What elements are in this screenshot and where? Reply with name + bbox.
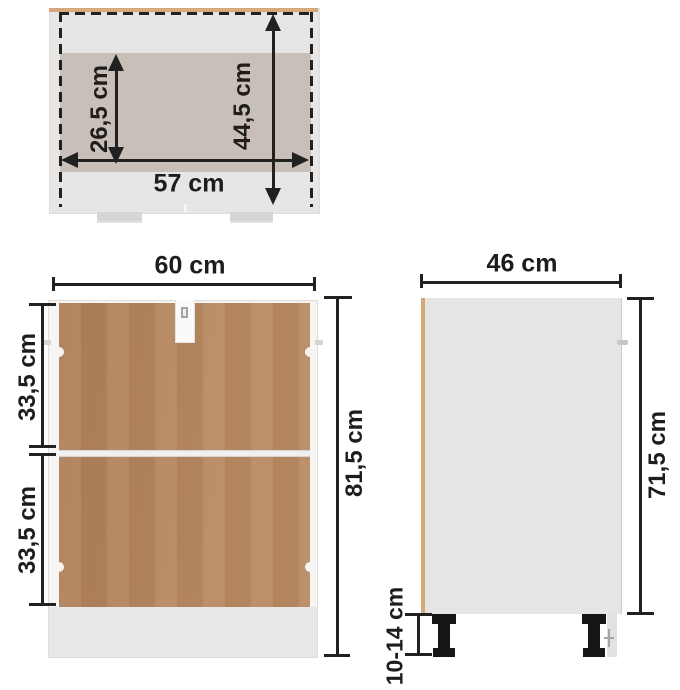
dim-line-depth — [420, 281, 622, 284]
dim-tick-bottom — [29, 445, 56, 448]
dim-label-body-height: 71,5 cm — [646, 411, 670, 499]
dashed-outline-left — [59, 12, 62, 207]
dim-label-lower-panel: 33,5 cm — [16, 486, 40, 574]
arrowhead-up-icon — [265, 14, 281, 31]
back-panel-lower — [59, 457, 310, 607]
dim-tick-top — [29, 453, 56, 456]
leg-stem — [588, 624, 600, 648]
panel-edge-notch — [305, 562, 315, 572]
dim-tick-bottom — [405, 653, 432, 656]
cabinet-dimension-diagram: 26,5 cm 44,5 cm 57 cm 60 cm — [0, 0, 680, 690]
top-foot-tab-left — [97, 212, 142, 223]
dim-tick-top — [627, 297, 654, 300]
leg-foot — [433, 648, 455, 657]
leg-adjuster-icon — [604, 629, 614, 647]
dim-line-body-height — [639, 298, 642, 614]
dashed-outline-right — [310, 12, 313, 207]
side-back-edge — [421, 298, 425, 614]
keyhole-icon — [181, 307, 188, 318]
dim-line — [115, 58, 118, 160]
dim-tick-right — [313, 277, 316, 291]
adjuster-bar — [604, 637, 614, 639]
dim-arrow-inner-width — [61, 152, 309, 168]
dim-tick-bottom — [29, 603, 56, 606]
dim-label-width: 60 cm — [155, 254, 226, 279]
dim-line — [272, 18, 275, 201]
dim-line-overall-height — [336, 297, 339, 657]
dim-arrow-overall-depth — [265, 14, 281, 205]
dim-label-overall-height: 81,5 cm — [343, 409, 367, 497]
cabinet-side-body — [421, 298, 622, 614]
top-foot-tab-right — [230, 212, 273, 223]
dim-tick-bottom — [627, 612, 654, 615]
dim-label-leg-height: 10-14 cm — [384, 587, 407, 685]
door-handle — [617, 340, 628, 345]
panel-edge-notch — [305, 347, 315, 357]
leg-rear — [582, 614, 606, 657]
dim-tick-left — [52, 277, 55, 291]
dim-line-width — [52, 283, 316, 286]
panel-edge-notch — [54, 347, 64, 357]
dim-tick-bottom — [324, 654, 350, 657]
dim-line-lower-panel — [41, 454, 44, 605]
plinth-strip — [49, 607, 317, 657]
dim-tick-right — [619, 274, 622, 288]
leg-cap — [582, 614, 606, 624]
arrowhead-left-icon — [61, 152, 78, 168]
dim-line — [65, 159, 305, 162]
dim-line-upper-panel — [41, 304, 44, 447]
hinge-pin-left — [43, 340, 51, 345]
dim-label-overall-depth: 44,5 cm — [231, 62, 255, 150]
top-bottom-notch — [184, 204, 187, 212]
leg-stem — [438, 624, 450, 648]
dim-tick-top — [29, 303, 56, 306]
dim-label-inner-width: 57 cm — [154, 172, 225, 197]
hinge-pin-right — [315, 340, 323, 345]
leg-foot — [583, 648, 605, 657]
dim-tick-top — [405, 613, 432, 616]
dim-label-inner-depth: 26,5 cm — [88, 65, 112, 153]
panel-edge-notch — [54, 562, 64, 572]
dim-tick-left — [420, 274, 423, 288]
leg-front — [432, 614, 456, 657]
leg-cap — [432, 614, 456, 624]
dim-label-depth: 46 cm — [487, 252, 558, 277]
arrowhead-right-icon — [292, 152, 309, 168]
dim-label-upper-panel: 33,5 cm — [16, 333, 40, 421]
arrowhead-down-icon — [265, 188, 281, 205]
dim-line-leg-height — [417, 614, 420, 656]
dim-tick-top — [324, 296, 352, 299]
back-panel-divider — [59, 450, 310, 457]
